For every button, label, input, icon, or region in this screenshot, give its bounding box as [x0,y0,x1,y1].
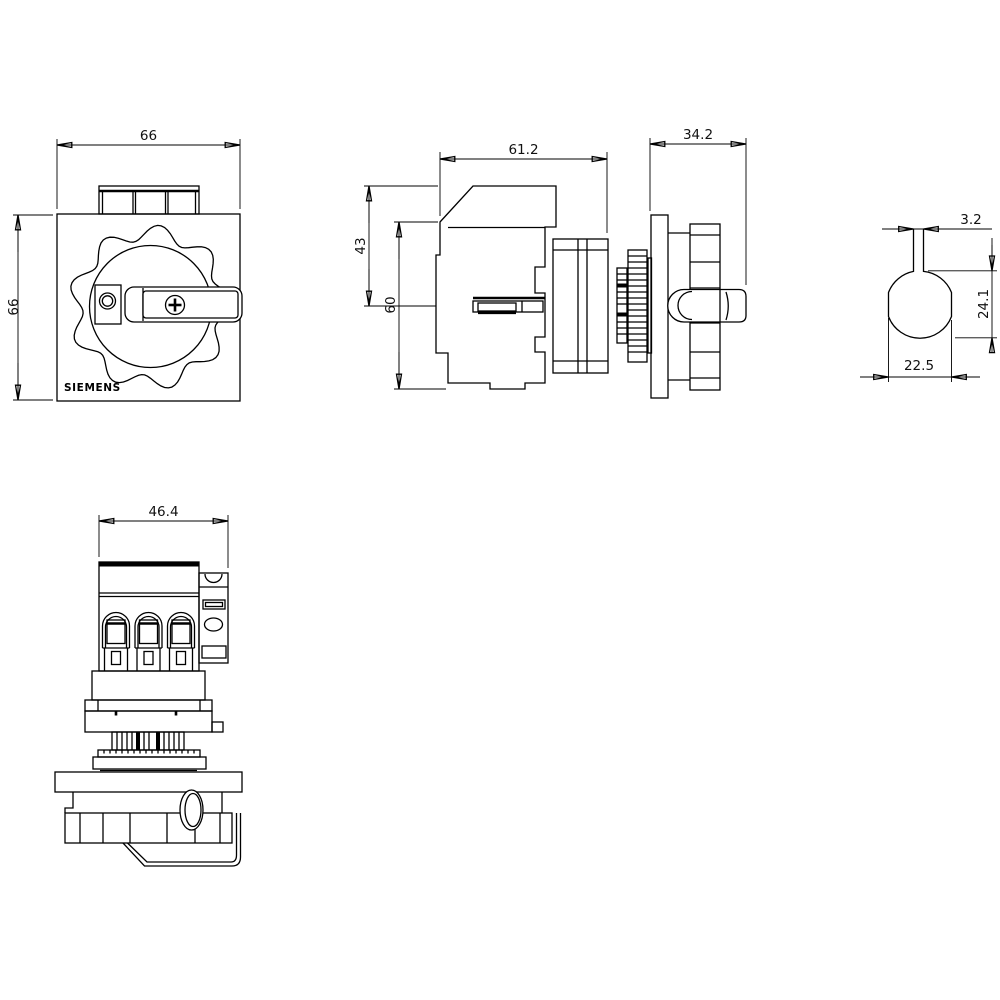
side-terminal-slot [473,298,545,313]
mounting-plate-side [553,239,608,373]
dim-side-handle-depth-label: 34.2 [683,127,713,143]
dim-side-body-width: 61.2 [440,142,607,233]
side-attachment-top [199,573,228,663]
dim-cutout-slot-width: 3.2 [882,212,992,229]
terminal-2 [135,613,162,672]
dim-front-height-label: 66 [6,298,22,315]
top-view: 46.4 [55,504,242,866]
handle-lock-pad [95,285,121,324]
front-flange-top [55,772,242,792]
side-view: 61.2 34.2 43 60 [353,127,746,398]
threaded-shaft-side [617,250,652,362]
grommet-top [180,790,203,830]
dim-cutout-slot-width-label: 3.2 [960,212,981,228]
terminal-1 [103,613,130,671]
dim-side-body-height-label: 60 [383,296,399,313]
dim-cutout-width-label: 22.5 [904,358,934,374]
threaded-collar-top [112,732,184,750]
handle-front [125,287,242,322]
terminal-block-front [99,186,199,214]
gear-plate-top [98,750,200,757]
dim-side-handle-depth: 34.2 [650,127,746,285]
terminal-3 [168,613,195,672]
dim-cutout-height-label: 24.1 [976,289,992,319]
dim-front-width-label: 66 [140,128,157,144]
dim-side-body-width-label: 61.2 [508,142,538,158]
dim-cutout-width: 22.5 [860,318,980,382]
panel-cutout-view: 3.2 24.1 22.5 [860,212,997,382]
handle-side [668,290,746,323]
dim-front-height: 66 [6,215,53,400]
front-flange-side [651,215,668,398]
brand-label: SIEMENS [64,382,121,394]
base-stack-top [55,671,242,866]
knob-band-top [65,813,232,843]
dim-cutout-height: 24.1 [928,238,997,352]
front-view: SIEMENS 66 66 [6,128,242,401]
dim-side-upper-height-label: 43 [353,237,369,254]
cutout-outline [889,229,952,338]
dim-top-view-width: 46.4 [99,504,228,568]
dimension-drawing: SIEMENS 66 66 [0,0,1000,1000]
dim-top-view-width-label: 46.4 [148,504,178,520]
dim-side-upper-height: 43 [353,186,438,306]
side-body-outline [436,186,556,389]
dim-front-width: 66 [57,128,240,209]
